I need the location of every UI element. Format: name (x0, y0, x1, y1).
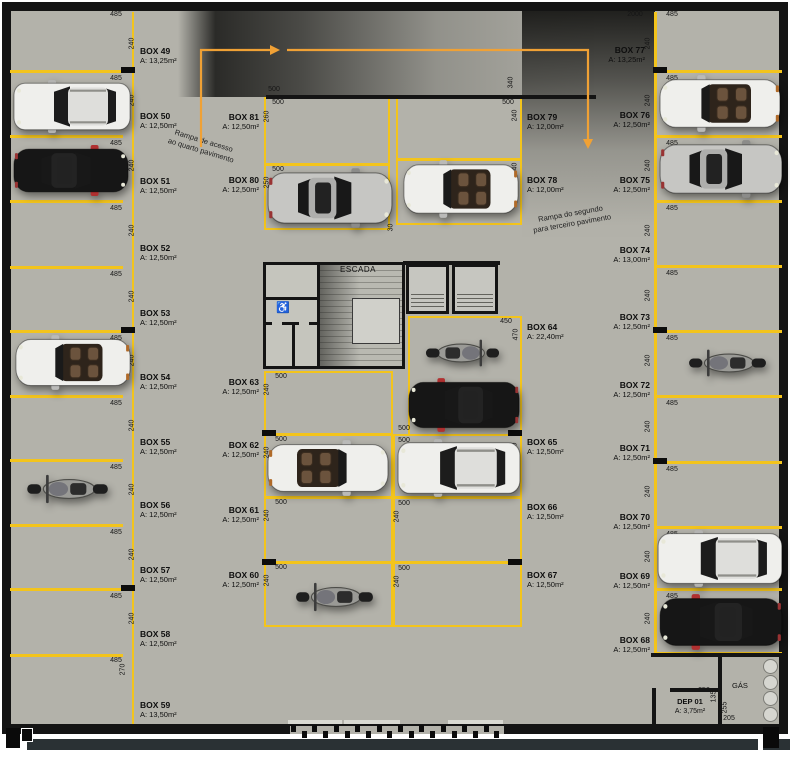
parking-floorplan: BOX 49A: 13,25m²BOX 50A: 12,50m²BOX 51A:… (0, 0, 790, 757)
traffic-arrows (0, 0, 790, 757)
arrowhead-right-icon (270, 45, 280, 55)
ramp-arrow-up (201, 50, 270, 147)
ramp-arrow-down (287, 50, 588, 139)
arrowhead-down-icon (583, 139, 593, 149)
